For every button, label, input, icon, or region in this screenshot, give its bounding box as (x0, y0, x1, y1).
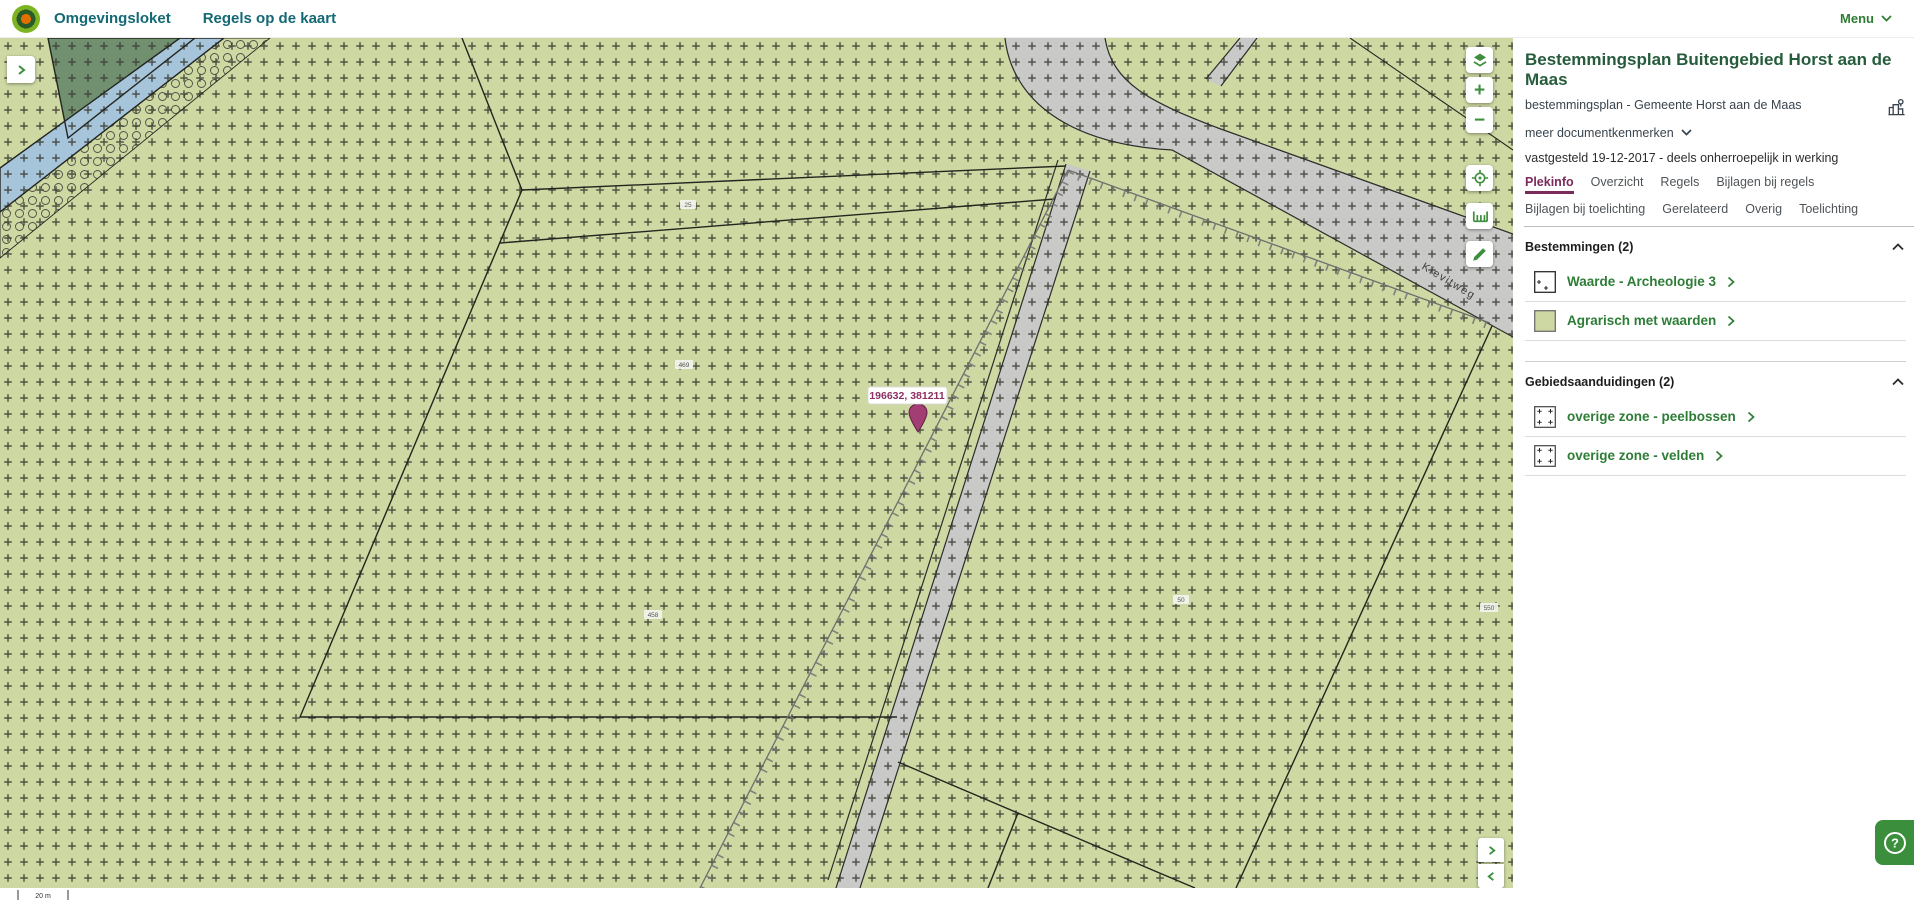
layers-button[interactable] (1466, 47, 1493, 73)
tab-bijlagen-bij-regels[interactable]: Bijlagen bij regels (1716, 175, 1814, 194)
tab-toelichting[interactable]: Toelichting (1799, 202, 1858, 216)
next-result-button[interactable] (1478, 838, 1504, 862)
draw-button[interactable] (1466, 241, 1493, 267)
legend-swatch-zone-icon (1534, 406, 1556, 428)
list-item-overige-zone-peelbossen[interactable]: overige zone - peelbossen (1525, 398, 1906, 437)
tab-regels[interactable]: Regels (1660, 175, 1699, 194)
list-item-agrarisch-met-waarden[interactable]: Agrarisch met waarden (1525, 302, 1906, 341)
chevron-right-icon (1727, 276, 1735, 288)
chevron-right-icon (1715, 450, 1723, 462)
app-title[interactable]: Omgevingsloket (54, 10, 171, 27)
minus-icon: − (1474, 111, 1485, 130)
plan-location-icon (1887, 98, 1906, 117)
help-button[interactable]: ? (1875, 820, 1914, 865)
scalebar: 20 m (0, 888, 100, 902)
section-header[interactable]: Bestemmingen (2) (1525, 227, 1906, 263)
zoom-out-button[interactable]: − (1466, 107, 1493, 133)
chevron-right-icon (1727, 315, 1735, 327)
top-bar: Omgevingsloket Regels op de kaart Menu (0, 0, 1914, 38)
coordinate-label: 196632, 381211 (869, 390, 944, 402)
parcel-label: 50 (1177, 597, 1185, 604)
item-link[interactable]: Agrarisch met waarden (1567, 313, 1716, 328)
menu-label: Menu (1840, 11, 1874, 26)
scale-label: 20 m (35, 893, 51, 900)
locate-button[interactable] (1466, 165, 1493, 191)
omgevingsloket-logo-icon (12, 5, 40, 33)
page-title: Bestemmingsplan Buitengebied Horst aan d… (1525, 50, 1906, 91)
chevron-up-icon (1892, 243, 1904, 251)
tab-bijlagen-bij-toelichting[interactable]: Bijlagen bij toelichting (1525, 202, 1645, 216)
map-canvas[interactable]: 25 469 458 50 550 Kievitweg 196632, 3812… (0, 38, 1513, 888)
section-header[interactable]: Gebiedsaanduidingen (2) (1525, 362, 1906, 398)
layers-icon (1471, 51, 1489, 69)
item-link[interactable]: Waarde - Archeologie 3 (1567, 274, 1716, 289)
tab-plekinfo[interactable]: Plekinfo (1525, 175, 1574, 194)
section-gebiedsaanduidingen: Gebiedsaanduidingen (2) overige zone - p… (1525, 362, 1906, 476)
tab-overig[interactable]: Overig (1745, 202, 1782, 216)
legend-swatch-archeologie-icon (1534, 271, 1556, 293)
menu-button[interactable]: Menu (1840, 11, 1892, 26)
list-item-waarde-archeologie[interactable]: Waarde - Archeologie 3 (1525, 263, 1906, 302)
parcel-label: 469 (679, 362, 690, 369)
section-bestemmingen: Bestemmingen (2) Waarde - Archeologie 3 … (1525, 227, 1906, 341)
parcel-label: 25 (684, 202, 692, 209)
nav-regels-op-de-kaart[interactable]: Regels op de kaart (203, 10, 336, 27)
plus-icon: + (1474, 81, 1485, 100)
section-title: Gebiedsaanduidingen (2) (1525, 375, 1674, 389)
chevron-right-icon (1747, 411, 1755, 423)
list-item-overige-zone-velden[interactable]: overige zone - velden (1525, 437, 1906, 476)
chevron-right-icon (1486, 845, 1497, 856)
parcel-label: 550 (1484, 605, 1495, 612)
crosshair-icon (1471, 169, 1489, 187)
question-mark-icon: ? (1883, 831, 1907, 855)
previous-result-button[interactable] (1478, 864, 1504, 888)
more-document-properties-link[interactable]: meer documentkenmerken (1525, 126, 1692, 140)
info-panel: Bestemmingsplan Buitengebied Horst aan d… (1513, 38, 1914, 902)
ruler-icon (1471, 208, 1489, 224)
chevron-right-icon (15, 64, 27, 76)
panel-expand-button[interactable] (7, 56, 35, 83)
legend-swatch-zone-icon (1534, 445, 1556, 467)
pencil-icon (1471, 246, 1488, 263)
tab-bar: Plekinfo Overzicht Regels Bijlagen bij r… (1524, 175, 1914, 227)
chevron-down-icon (1681, 129, 1692, 136)
svg-text:?: ? (1891, 835, 1899, 850)
tab-gerelateerd[interactable]: Gerelateerd (1662, 202, 1728, 216)
coordinate-tooltip: 196632, 381211 (868, 387, 947, 404)
item-link[interactable]: overige zone - peelbossen (1567, 409, 1736, 424)
status-line: vastgesteld 19-12-2017 - deels onherroep… (1525, 151, 1906, 165)
plan-subtitle: bestemmingsplan - Gemeente Horst aan de … (1525, 98, 1802, 112)
more-document-properties-label: meer documentkenmerken (1525, 126, 1674, 140)
chevron-up-icon (1892, 378, 1904, 386)
tab-overzicht[interactable]: Overzicht (1591, 175, 1644, 194)
map-plus-pattern (0, 38, 1513, 888)
zoom-in-button[interactable]: + (1466, 77, 1493, 103)
parcel-label: 458 (648, 612, 659, 619)
scalebar-strip: 20 m (0, 888, 1513, 902)
item-link[interactable]: overige zone - velden (1567, 448, 1704, 463)
basemap: 25 469 458 50 550 Kievitweg 196632, 3812… (0, 38, 1513, 888)
measure-button[interactable] (1466, 203, 1493, 229)
chevron-left-icon (1486, 871, 1497, 882)
chevron-down-icon (1881, 15, 1892, 22)
legend-swatch-agrarisch-icon (1534, 310, 1556, 332)
section-title: Bestemmingen (2) (1525, 240, 1633, 254)
